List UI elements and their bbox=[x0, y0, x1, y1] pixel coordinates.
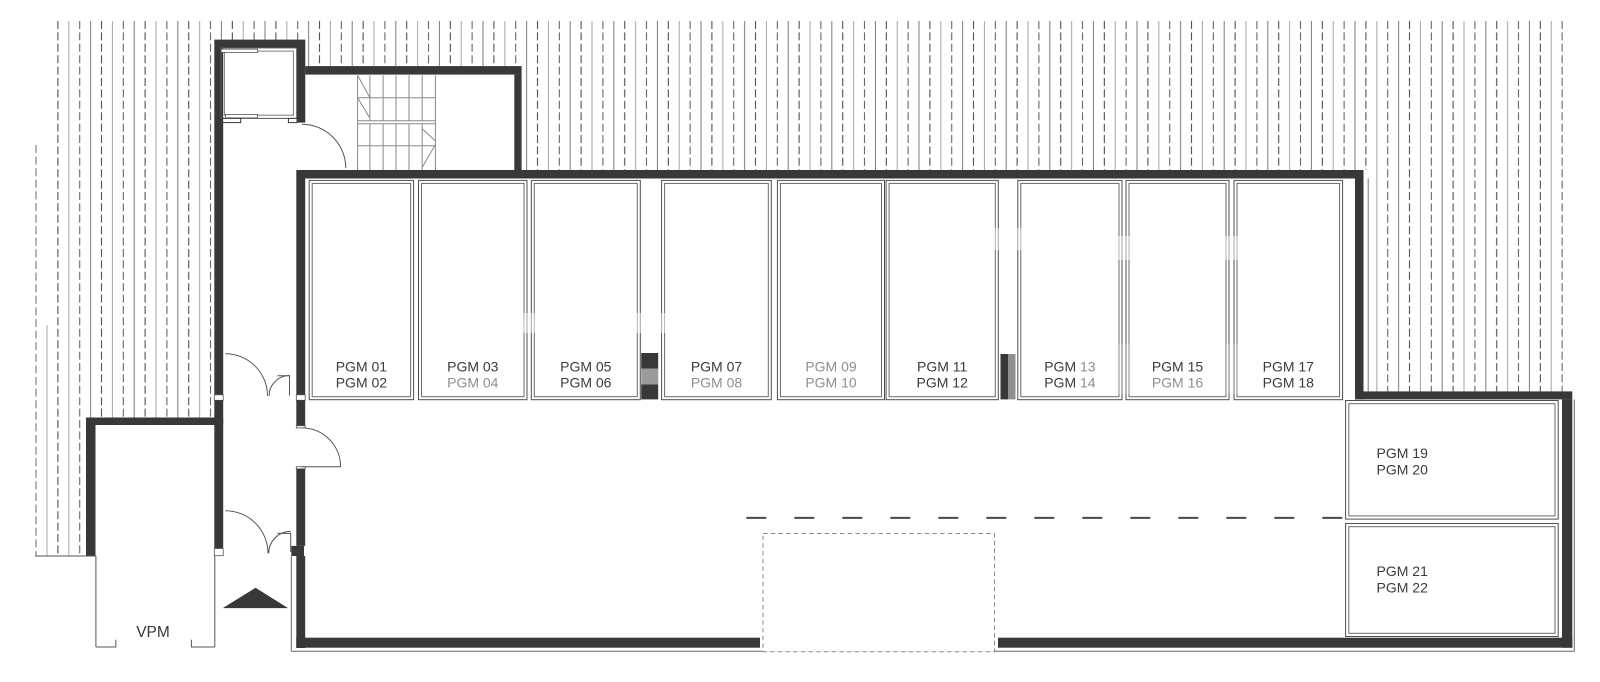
svg-text:PGM 18: PGM 18 bbox=[1263, 375, 1315, 391]
svg-text:PGM 16: PGM 16 bbox=[1152, 375, 1204, 391]
svg-text:PGM 12: PGM 12 bbox=[917, 375, 969, 391]
svg-text:PGM 10: PGM 10 bbox=[805, 375, 857, 391]
svg-text:PGM 15: PGM 15 bbox=[1152, 359, 1204, 375]
svg-text:PGM 07: PGM 07 bbox=[691, 359, 743, 375]
svg-text:PGM 01: PGM 01 bbox=[336, 359, 388, 375]
svg-text:PGM 03: PGM 03 bbox=[447, 359, 499, 375]
svg-text:PGM 22: PGM 22 bbox=[1377, 580, 1429, 596]
svg-text:PGM 20: PGM 20 bbox=[1377, 461, 1429, 477]
svg-text:PGM 08: PGM 08 bbox=[691, 375, 743, 391]
svg-text:PGM 11: PGM 11 bbox=[917, 359, 968, 375]
svg-text:PGM 02: PGM 02 bbox=[336, 375, 388, 391]
svg-text:PGM 21: PGM 21 bbox=[1377, 563, 1429, 579]
svg-text:PGM 04: PGM 04 bbox=[447, 375, 499, 391]
svg-text:PGM 17: PGM 17 bbox=[1263, 359, 1315, 375]
svg-text:PGM 13: PGM 13 bbox=[1044, 359, 1096, 375]
svg-text:PGM 14: PGM 14 bbox=[1044, 375, 1096, 391]
svg-text:PGM 05: PGM 05 bbox=[560, 359, 612, 375]
svg-text:PGM 19: PGM 19 bbox=[1377, 445, 1429, 461]
svg-text:VPM: VPM bbox=[136, 624, 170, 641]
svg-text:PGM 09: PGM 09 bbox=[805, 359, 857, 375]
svg-text:PGM 06: PGM 06 bbox=[560, 375, 612, 391]
